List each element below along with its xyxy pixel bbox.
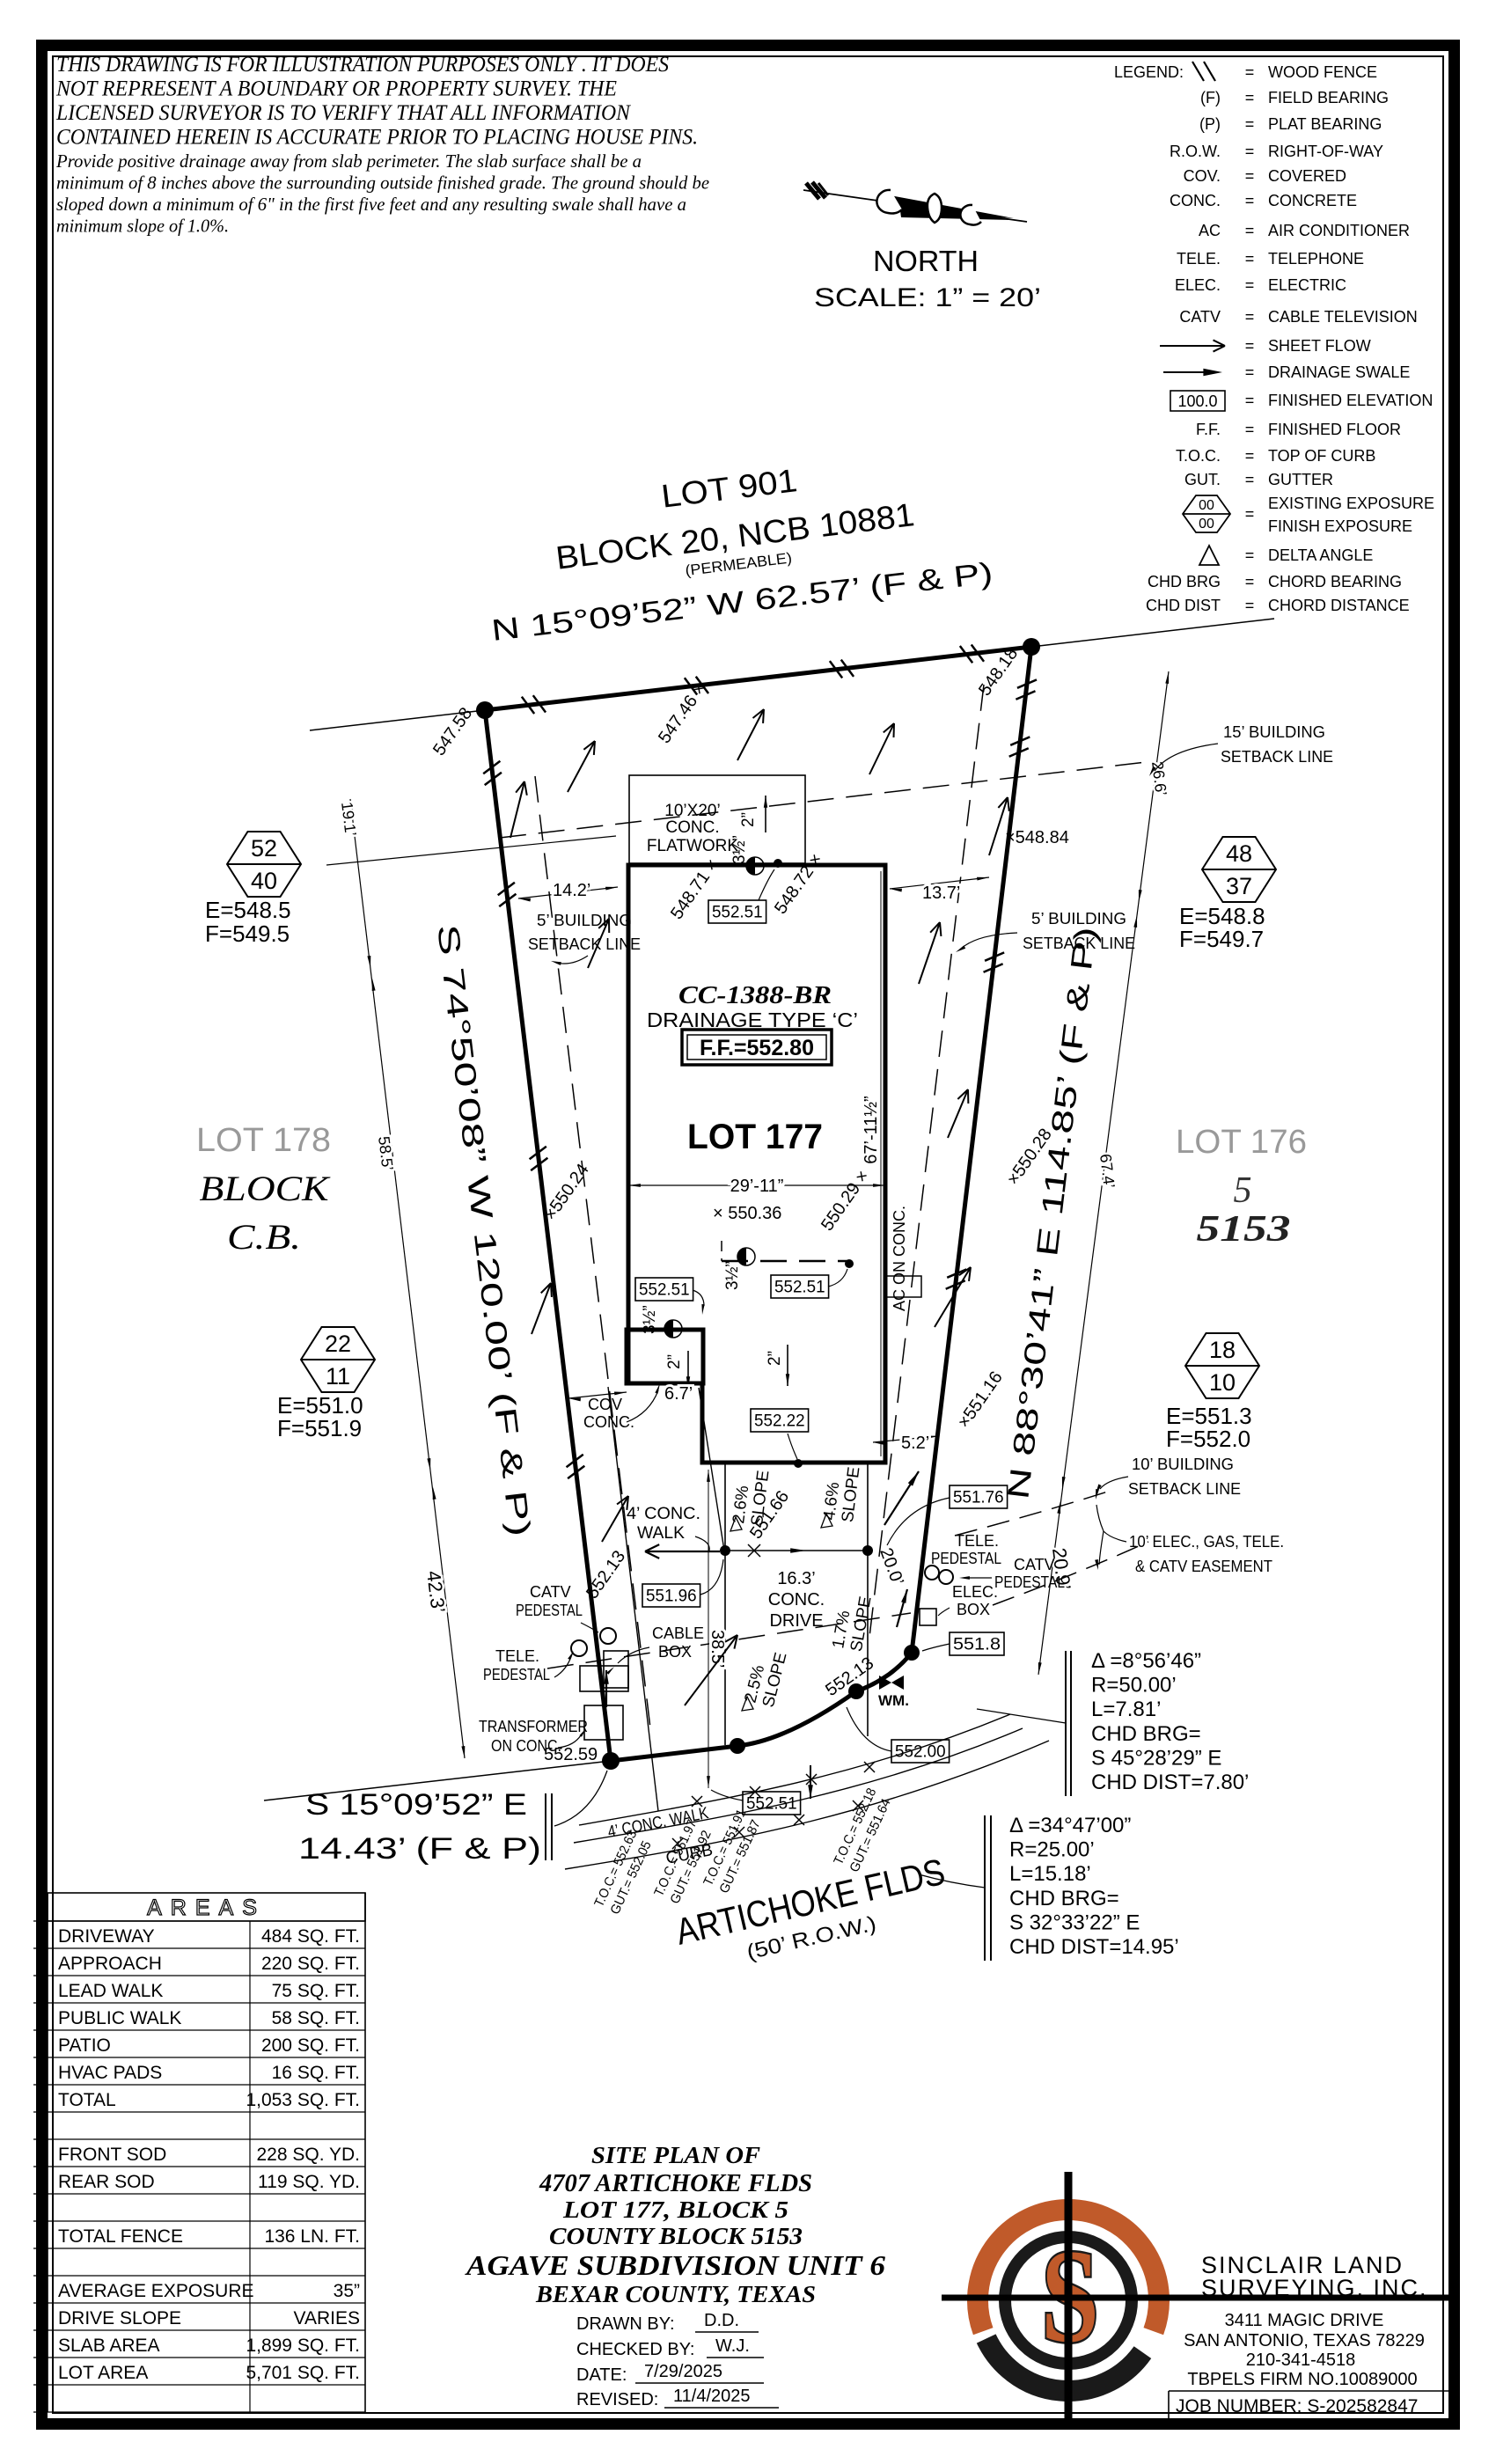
svg-text:CHD DIST=14.95’: CHD DIST=14.95’: [1009, 1935, 1179, 1959]
svg-text:552.51: 552.51: [639, 1281, 690, 1300]
svg-text:5’ BUILDING: 5’ BUILDING: [1031, 910, 1126, 928]
svg-text:=: =: [1245, 505, 1255, 523]
svg-text:1,053 SQ. FT.: 1,053 SQ. FT.: [246, 2090, 360, 2110]
svg-text:DELTA ANGLE: DELTA ANGLE: [1268, 546, 1373, 564]
svg-text:58 SQ. FT.: 58 SQ. FT.: [272, 2008, 360, 2028]
svg-text:22: 22: [325, 1331, 351, 1357]
svg-text:AIR CONDITIONER: AIR CONDITIONER: [1268, 222, 1410, 239]
svg-text:Δ =34°47’00”: Δ =34°47’00”: [1009, 1814, 1131, 1837]
svg-text:14.43’ (F & P): 14.43’ (F & P): [298, 1832, 541, 1866]
svg-text:LOT 177: LOT 177: [687, 1118, 823, 1156]
svg-text:RIGHT-OF-WAY: RIGHT-OF-WAY: [1268, 143, 1383, 160]
svg-text:CHD DIST=7.80’: CHD DIST=7.80’: [1091, 1771, 1249, 1794]
svg-text:1,899 SQ. FT.: 1,899 SQ. FT.: [246, 2336, 360, 2356]
svg-text:TELE.: TELE.: [495, 1647, 539, 1665]
svg-text:FRONT SOD: FRONT SOD: [58, 2145, 166, 2165]
svg-text:TELE.: TELE.: [955, 1532, 999, 1550]
svg-text:=: =: [1245, 222, 1255, 239]
svg-text:=: =: [1245, 546, 1255, 564]
svg-text:5,701 SQ. FT.: 5,701 SQ. FT.: [246, 2363, 360, 2383]
svg-text:CHD DIST: CHD DIST: [1146, 597, 1221, 614]
svg-text:CATV: CATV: [530, 1583, 571, 1601]
svg-text:F=549.5: F=549.5: [205, 920, 290, 947]
svg-text:14.2’: 14.2’: [553, 881, 590, 900]
svg-text:PEDESTAL: PEDESTAL: [516, 1602, 583, 1619]
svg-text:136 LN. FT.: 136 LN. FT.: [264, 2226, 360, 2247]
svg-text:CHORD BEARING: CHORD BEARING: [1268, 573, 1402, 590]
svg-text:F=552.0: F=552.0: [1166, 1426, 1250, 1452]
svg-text:WM.: WM.: [878, 1692, 909, 1709]
svg-text:2”: 2”: [766, 1351, 784, 1366]
svg-text:11: 11: [326, 1363, 350, 1390]
svg-text:FINISHED FLOOR: FINISHED FLOOR: [1268, 421, 1401, 438]
svg-text:13.7’: 13.7’: [922, 884, 960, 903]
svg-text:=: =: [1245, 308, 1255, 326]
svg-text:CONTAINED HEREIN IS ACCURATE P: CONTAINED HEREIN IS ACCURATE PRIOR TO PL…: [56, 126, 698, 150]
svg-text:(P): (P): [1199, 115, 1221, 133]
svg-text:THIS DRAWING IS FOR ILLUSTRATI: THIS DRAWING IS FOR ILLUSTRATION PURPOSE…: [56, 53, 669, 77]
svg-text:PEDESTAL: PEDESTAL: [994, 1573, 1065, 1591]
svg-text:37: 37: [1226, 873, 1252, 899]
svg-text:CONC.: CONC.: [768, 1590, 825, 1610]
svg-text:3½”: 3½”: [641, 1305, 659, 1334]
svg-text:10’ ELEC., GAS, TELE.: 10’ ELEC., GAS, TELE.: [1129, 1533, 1284, 1551]
svg-text:PUBLIC WALK: PUBLIC WALK: [58, 2008, 181, 2028]
svg-text:COV: COV: [588, 1396, 622, 1413]
svg-text:& CATV EASEMENT: & CATV EASEMENT: [1135, 1558, 1272, 1575]
svg-text:=: =: [1245, 337, 1255, 355]
svg-text:AVERAGE EXPOSURE: AVERAGE EXPOSURE: [58, 2281, 254, 2301]
svg-text:× 550.36: × 550.36: [713, 1204, 781, 1223]
svg-text:L=15.18’: L=15.18’: [1009, 1862, 1091, 1886]
svg-text:APPROACH: APPROACH: [58, 1954, 162, 1974]
svg-text:F=551.9: F=551.9: [277, 1415, 362, 1441]
svg-text:PLAT BEARING: PLAT BEARING: [1268, 115, 1382, 133]
svg-text:552.00: 552.00: [895, 1743, 946, 1762]
svg-text:551.76: 551.76: [953, 1489, 1004, 1507]
svg-text:TELE.: TELE.: [1177, 250, 1221, 268]
svg-text:CATV: CATV: [1179, 308, 1221, 326]
svg-text:SAN ANTONIO, TEXAS 78229: SAN ANTONIO, TEXAS 78229: [1184, 2331, 1425, 2350]
svg-text:L=7.81’: L=7.81’: [1091, 1698, 1161, 1721]
svg-text:=: =: [1245, 115, 1255, 133]
svg-text:CATV: CATV: [1014, 1556, 1055, 1573]
svg-text:DRAINAGE TYPE ‘C’: DRAINAGE TYPE ‘C’: [647, 1008, 858, 1031]
svg-text:SETBACK LINE: SETBACK LINE: [1023, 935, 1135, 952]
svg-text:CHD BRG=: CHD BRG=: [1091, 1722, 1201, 1746]
svg-text:52: 52: [251, 835, 277, 862]
svg-text:18: 18: [1209, 1337, 1236, 1363]
svg-text:SLAB AREA: SLAB AREA: [58, 2336, 160, 2356]
svg-text:LEAD WALK: LEAD WALK: [58, 1981, 163, 2001]
svg-text:LOT 176: LOT 176: [1176, 1124, 1307, 1161]
svg-text:AREAS: AREAS: [147, 1896, 266, 1920]
svg-text:CONCRETE: CONCRETE: [1268, 192, 1357, 209]
svg-text:FINISHED ELEVATION: FINISHED ELEVATION: [1268, 392, 1433, 409]
svg-text:00: 00: [1199, 517, 1214, 532]
svg-text:=: =: [1245, 63, 1255, 81]
svg-text:WALK: WALK: [637, 1524, 685, 1543]
svg-text:=: =: [1245, 421, 1255, 438]
svg-text:ON CONC.: ON CONC.: [491, 1737, 561, 1755]
svg-text:F.F.: F.F.: [1196, 421, 1221, 438]
svg-text:=: =: [1245, 167, 1255, 185]
svg-text:BLOCK: BLOCK: [200, 1169, 332, 1208]
svg-text:R.O.W.: R.O.W.: [1170, 143, 1221, 160]
svg-text:200 SQ. FT.: 200 SQ. FT.: [261, 2035, 360, 2056]
svg-text:Δ =8°56’46”: Δ =8°56’46”: [1091, 1649, 1201, 1673]
svg-text:552.51: 552.51: [774, 1279, 825, 1297]
svg-text:4707 ARTICHOKE FLDS: 4707 ARTICHOKE FLDS: [539, 2169, 812, 2197]
svg-text:5153: 5153: [1197, 1209, 1291, 1250]
svg-text:SETBACK LINE: SETBACK LINE: [1128, 1480, 1241, 1498]
svg-text:TELEPHONE: TELEPHONE: [1268, 250, 1364, 268]
svg-text:100.0: 100.0: [1177, 392, 1217, 410]
svg-text:3411 MAGIC DRIVE: 3411 MAGIC DRIVE: [1225, 2311, 1384, 2330]
svg-text:CHECKED BY:: CHECKED BY:: [576, 2340, 694, 2359]
svg-text:REAR SOD: REAR SOD: [58, 2172, 155, 2192]
svg-text:F=549.7: F=549.7: [1179, 926, 1264, 952]
svg-text:PATIO: PATIO: [58, 2035, 111, 2056]
svg-text:40: 40: [251, 868, 277, 894]
svg-text:5’ BUILDING: 5’ BUILDING: [537, 912, 632, 929]
svg-text:D.D.: D.D.: [704, 2311, 739, 2330]
svg-text:LICENSED SURVEYOR IS TO VERIFY: LICENSED SURVEYOR IS TO VERIFY THAT ALL …: [55, 101, 631, 125]
svg-text:228 SQ. YD.: 228 SQ. YD.: [256, 2145, 360, 2165]
svg-text:T.O.C.: T.O.C.: [1176, 447, 1221, 465]
svg-text:CONC.: CONC.: [1170, 192, 1221, 209]
svg-text:6.7’: 6.7’: [664, 1384, 693, 1404]
svg-text:S 45°28’29” E: S 45°28’29” E: [1091, 1746, 1221, 1770]
svg-text:WOOD FENCE: WOOD FENCE: [1268, 63, 1377, 81]
svg-text:R=25.00’: R=25.00’: [1009, 1838, 1095, 1862]
svg-text:TOTAL: TOTAL: [58, 2090, 116, 2110]
svg-text:CHORD DISTANCE: CHORD DISTANCE: [1268, 597, 1410, 614]
svg-text:GUTTER: GUTTER: [1268, 471, 1333, 488]
svg-text:HVAC PADS: HVAC PADS: [58, 2063, 162, 2083]
svg-text:DRIVE: DRIVE: [769, 1611, 823, 1631]
svg-text:GUT.: GUT.: [1184, 471, 1221, 488]
svg-text:PEDESTAL: PEDESTAL: [931, 1550, 1001, 1567]
svg-text:CHD BRG: CHD BRG: [1148, 573, 1221, 590]
svg-text:SETBACK LINE: SETBACK LINE: [528, 935, 641, 953]
svg-text:BEXAR COUNTY, TEXAS: BEXAR COUNTY, TEXAS: [535, 2281, 816, 2307]
svg-text:CONC.: CONC.: [665, 818, 719, 837]
svg-text:TRANSFORMER: TRANSFORMER: [479, 1718, 588, 1735]
svg-text:minimum of 8 inches above the: minimum of 8 inches above the surroundin…: [56, 172, 709, 194]
svg-text:R=50.00’: R=50.00’: [1091, 1674, 1177, 1698]
svg-text:10’ BUILDING: 10’ BUILDING: [1132, 1456, 1234, 1473]
svg-text:SCALE: 1” = 20’: SCALE: 1” = 20’: [814, 283, 1041, 312]
svg-text:JOB NUMBER: S-202582847: JOB NUMBER: S-202582847: [1176, 2396, 1418, 2416]
svg-text:(F): (F): [1200, 89, 1221, 106]
svg-text:LOT AREA: LOT AREA: [58, 2363, 148, 2383]
svg-text:=: =: [1245, 573, 1255, 590]
svg-text:16 SQ. FT.: 16 SQ. FT.: [272, 2063, 360, 2083]
svg-text:DATE:: DATE:: [576, 2365, 627, 2385]
svg-text:=: =: [1245, 143, 1255, 160]
svg-text:35”: 35”: [334, 2281, 360, 2301]
svg-text:ELECTRIC: ELECTRIC: [1268, 276, 1346, 294]
svg-text:BOX: BOX: [658, 1643, 692, 1661]
svg-text:10: 10: [1209, 1369, 1236, 1396]
svg-text:PEDESTAL: PEDESTAL: [483, 1666, 550, 1683]
svg-text:75 SQ. FT.: 75 SQ. FT.: [272, 1981, 360, 2001]
svg-text:NORTH: NORTH: [873, 245, 979, 277]
svg-text:AC: AC: [1199, 222, 1221, 239]
svg-text:210-341-4518: 210-341-4518: [1246, 2350, 1356, 2370]
svg-text:FINISH EXPOSURE: FINISH EXPOSURE: [1268, 517, 1412, 535]
svg-text:TOTAL FENCE: TOTAL FENCE: [58, 2226, 183, 2247]
svg-text:Provide positive drainage away: Provide positive drainage away from slab…: [55, 150, 642, 172]
svg-text:=: =: [1245, 363, 1255, 381]
svg-text:DRIVEWAY: DRIVEWAY: [58, 1926, 155, 1947]
svg-text:×548.84: ×548.84: [1005, 828, 1069, 847]
svg-text:COV.: COV.: [1184, 167, 1221, 185]
svg-text:7/29/2025: 7/29/2025: [644, 2362, 722, 2381]
svg-text:=: =: [1245, 192, 1255, 209]
svg-text:AGAVE SUBDIVISION UNIT 6: AGAVE SUBDIVISION UNIT 6: [465, 2249, 885, 2281]
svg-text:11/4/2025: 11/4/2025: [673, 2387, 751, 2406]
svg-text:5: 5: [1234, 1170, 1252, 1211]
svg-text:3½”: 3½”: [723, 1261, 742, 1290]
svg-text:DRAINAGE SWALE: DRAINAGE SWALE: [1268, 363, 1410, 381]
svg-text:00: 00: [1199, 498, 1214, 513]
svg-text:REVISED:: REVISED:: [576, 2390, 658, 2409]
svg-text:=: =: [1245, 471, 1255, 488]
svg-text:C.B.: C.B.: [227, 1217, 301, 1257]
svg-text:=: =: [1245, 250, 1255, 268]
svg-text:COUNTY BLOCK 5153: COUNTY BLOCK 5153: [549, 2223, 803, 2249]
svg-text:48: 48: [1226, 840, 1252, 867]
svg-text:SETBACK LINE: SETBACK LINE: [1221, 748, 1333, 766]
svg-text:W.J.: W.J.: [715, 2336, 750, 2356]
svg-text:119 SQ. YD.: 119 SQ. YD.: [258, 2172, 360, 2192]
svg-text:FIELD BEARING: FIELD BEARING: [1268, 89, 1389, 106]
svg-text:CC-1388-BR: CC-1388-BR: [678, 981, 832, 1009]
svg-text:AC ON CONC.: AC ON CONC.: [891, 1206, 908, 1311]
svg-text:CABLE: CABLE: [652, 1624, 704, 1642]
svg-text:NOT REPRESENT A BOUNDARY OR PR: NOT REPRESENT A BOUNDARY OR PROPERTY SUR…: [55, 77, 617, 101]
svg-text:551.8: 551.8: [953, 1636, 1001, 1654]
svg-text:15’ BUILDING: 15’ BUILDING: [1223, 723, 1325, 741]
svg-text:TBPELS FIRM NO.10089000: TBPELS FIRM NO.10089000: [1187, 2370, 1417, 2389]
svg-text:=: =: [1245, 392, 1255, 409]
svg-text:LEGEND:: LEGEND:: [1114, 63, 1184, 81]
svg-text:COVERED: COVERED: [1268, 167, 1346, 185]
svg-text:2”: 2”: [739, 812, 758, 827]
svg-text:LOT 177, BLOCK 5: LOT 177, BLOCK 5: [562, 2196, 788, 2223]
svg-text:SURVEYING, INC.: SURVEYING, INC.: [1201, 2275, 1428, 2301]
svg-text:F.F.=552.80: F.F.=552.80: [700, 1036, 814, 1060]
svg-text:3½”: 3½”: [730, 835, 749, 864]
svg-text:29’-11”: 29’-11”: [730, 1177, 784, 1196]
svg-text:S 32°33’22” E: S 32°33’22” E: [1009, 1910, 1140, 1934]
svg-text:552.22: 552.22: [754, 1412, 805, 1431]
svg-text:DRAWN BY:: DRAWN BY:: [576, 2314, 675, 2334]
svg-text:220 SQ. FT.: 220 SQ. FT.: [261, 1954, 360, 1974]
svg-text:TOP OF CURB: TOP OF CURB: [1268, 447, 1375, 465]
svg-text:ELEC.: ELEC.: [1175, 276, 1221, 294]
svg-text:S 15°09’52” E: S 15°09’52” E: [305, 1788, 527, 1822]
svg-text:5.2’: 5.2’: [901, 1434, 929, 1453]
svg-text:=: =: [1245, 89, 1255, 106]
svg-text:=: =: [1245, 276, 1255, 294]
svg-text:E=548.5: E=548.5: [205, 897, 291, 923]
svg-text:FLATWORK: FLATWORK: [647, 837, 738, 855]
svg-text:sloped down a minimum of 6" in: sloped down a minimum of 6" in the first…: [56, 194, 686, 215]
svg-text:SHEET FLOW: SHEET FLOW: [1268, 337, 1371, 355]
svg-text:10’X20’: 10’X20’: [664, 802, 720, 820]
svg-text:CHD BRG=: CHD BRG=: [1009, 1887, 1119, 1910]
svg-text:BOX: BOX: [957, 1601, 990, 1618]
svg-text:67’-11½”: 67’-11½”: [862, 1096, 881, 1163]
svg-text:4’ CONC.: 4’ CONC.: [627, 1505, 700, 1523]
svg-text:minimum slope of 1.0%.: minimum slope of 1.0%.: [56, 216, 229, 237]
svg-text:LOT 178: LOT 178: [196, 1122, 331, 1159]
svg-text:=: =: [1245, 447, 1255, 465]
svg-text:DRIVE SLOPE: DRIVE SLOPE: [58, 2308, 181, 2328]
svg-text:552.51: 552.51: [746, 1795, 797, 1814]
svg-text:CABLE TELEVISION: CABLE TELEVISION: [1268, 308, 1418, 326]
svg-text:2”: 2”: [665, 1354, 684, 1369]
svg-text:VARIES: VARIES: [294, 2308, 360, 2328]
svg-text:SITE PLAN OF: SITE PLAN OF: [591, 2142, 760, 2168]
svg-text:=: =: [1245, 597, 1255, 614]
svg-text:ELEC.: ELEC.: [952, 1583, 998, 1601]
svg-text:552.51: 552.51: [712, 904, 763, 922]
svg-text:551.96: 551.96: [646, 1588, 697, 1606]
svg-text:EXISTING EXPOSURE: EXISTING EXPOSURE: [1268, 495, 1434, 512]
svg-text:16.3’: 16.3’: [777, 1569, 815, 1588]
svg-text:484 SQ. FT.: 484 SQ. FT.: [261, 1926, 360, 1947]
